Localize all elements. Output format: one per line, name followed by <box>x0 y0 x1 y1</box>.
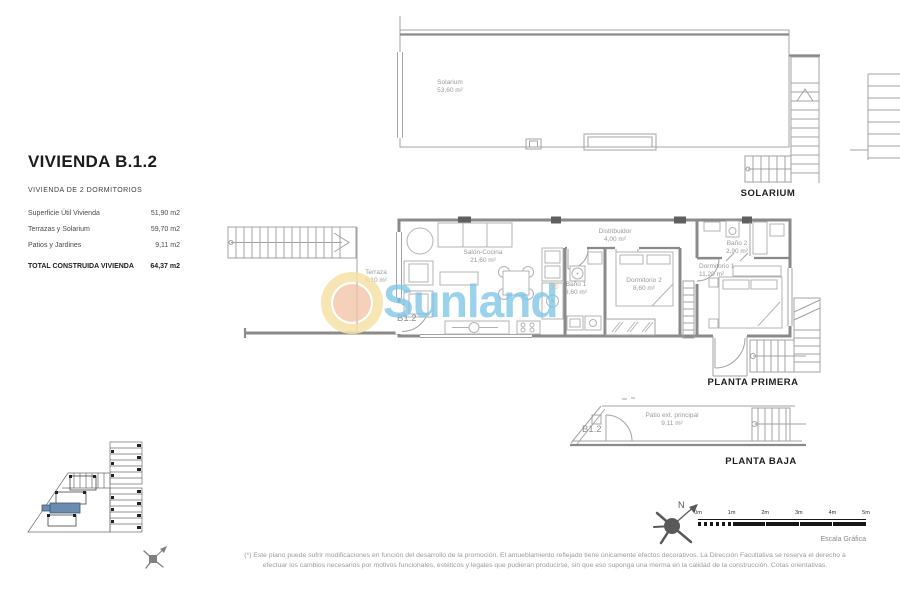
table-row-total: TOTAL CONSTRUIDA VIVIENDA 64,37 m2 <box>28 263 180 270</box>
disclaimer-line1: (*) Este plano puede sufrir modificacion… <box>200 551 890 561</box>
room-label-bano2: Baño 2 2,90 m² <box>707 240 767 255</box>
scale-tick: 4m <box>829 510 837 516</box>
disclaimer-line2: efectuar los cambios necesarios por moti… <box>200 561 890 571</box>
page-subtitle: VIVIENDA DE 2 DORMITORIOS <box>28 187 180 194</box>
scale-segment <box>799 522 833 526</box>
neighbor-stairs-fragment <box>850 74 900 160</box>
scale-tick: 3m <box>795 510 803 516</box>
area-value: 59,70 m2 <box>151 226 180 233</box>
area-value: 9,11 m2 <box>155 242 180 249</box>
unit-label-baja: B1.2 <box>582 424 602 435</box>
site-key-plan <box>22 440 144 536</box>
area-value: 51,90 m2 <box>151 210 180 217</box>
solarium-plan-drawing <box>388 14 900 206</box>
caption-planta-primera: PLANTA PRIMERA <box>683 377 823 388</box>
exterior-stairs-left <box>228 227 356 258</box>
sunland-logo-icon <box>312 263 392 343</box>
compass-small-icon <box>140 544 170 574</box>
scale-bar-segments <box>698 522 866 526</box>
room-label-solarium: Solarium 53,60 m² <box>410 79 490 94</box>
caption-solarium: SOLARIUM <box>718 188 818 199</box>
scale-segment <box>698 522 732 526</box>
scale-segment <box>832 522 866 526</box>
table-row: Superficie Útil Vivienda 51,90 m2 <box>28 210 180 217</box>
room-label-dormitorio2: Dormitorio 2 8,60 m² <box>604 277 684 292</box>
total-label: TOTAL CONSTRUIDA VIVIENDA <box>28 263 134 270</box>
area-table: Superficie Útil Vivienda 51,90 m2 Terraz… <box>28 210 180 270</box>
scale-segment <box>765 522 799 526</box>
registered-trademark-icon: ® <box>552 281 559 291</box>
page-title: VIVIENDA B.1.2 <box>28 152 180 172</box>
room-label-salon-cocina: Salón-Cocina 21,60 m² <box>443 249 523 264</box>
scale-caption: Escala Gráfica <box>740 536 866 543</box>
area-label: Superficie Útil Vivienda <box>28 210 100 217</box>
scale-tick: 5m <box>862 510 870 516</box>
floorplan-sheet: VIVIENDA B.1.2 VIVIENDA DE 2 DORMITORIOS… <box>0 0 900 600</box>
disclaimer: (*) Este plano puede sufrir modificacion… <box>200 551 890 570</box>
patio-stairs <box>752 408 806 441</box>
title-block: VIVIENDA B.1.2 VIVIENDA DE 2 DORMITORIOS… <box>28 152 180 279</box>
solarium-stairs <box>745 56 820 184</box>
table-row: Patios y Jardines 9,11 m2 <box>28 242 180 249</box>
sunland-watermark-text: Sunland <box>383 278 557 324</box>
north-label: N <box>678 500 685 510</box>
scale-bar: 0m 1m 2m 3m 4m 5m <box>698 510 866 534</box>
scale-tick: 2m <box>761 510 769 516</box>
scale-segment <box>732 522 766 526</box>
room-label-distribuidor: Distribuidor 4,00 m² <box>575 228 655 243</box>
scale-tick: 1m <box>728 510 736 516</box>
scale-tick: 0m <box>694 510 702 516</box>
site-plan-highlighted-unit <box>42 503 80 513</box>
area-label: Patios y Jardines <box>28 242 81 249</box>
room-label-patio: Patio ext. principal 9,11 m² <box>632 412 712 427</box>
solarium-fixtures <box>526 134 656 150</box>
scale-bar-rule <box>698 519 866 521</box>
total-value: 64,37 m2 <box>150 263 180 270</box>
entrance-vestibule <box>713 336 747 376</box>
room-label-dormitorio1: Dormitorio 1 11,20 m² <box>699 263 759 278</box>
table-row: Terrazas y Solarium 59,70 m2 <box>28 226 180 233</box>
area-label: Terrazas y Solarium <box>28 226 90 233</box>
caption-planta-baja: PLANTA BAJA <box>691 456 831 467</box>
